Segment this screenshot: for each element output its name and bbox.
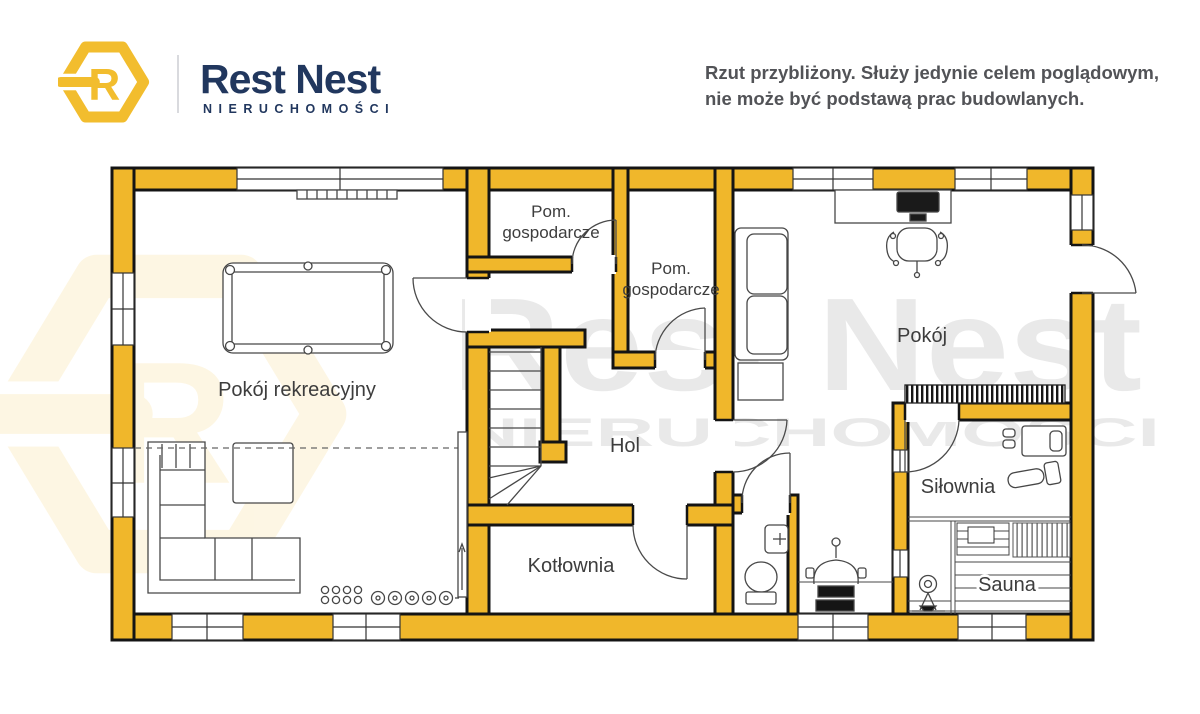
- window: [172, 614, 243, 640]
- wall-kotlownia-top: [467, 505, 733, 525]
- window: [798, 614, 868, 640]
- room-label-gosp2-line1: Pom.: [651, 259, 691, 278]
- window: [112, 273, 134, 345]
- wall-central: [715, 168, 733, 614]
- room-label-gosp1-line2: gospodarcze: [502, 223, 599, 242]
- wall-radiator-icon: [458, 432, 467, 597]
- room-label-sauna: Sauna: [978, 574, 1037, 596]
- coffee-table-icon: [233, 443, 293, 503]
- sauna-benches-icon: [908, 517, 1071, 614]
- wall-bottom: [112, 614, 1093, 640]
- room-label-hol: Hol: [610, 435, 640, 457]
- toilet-icon: [745, 562, 777, 604]
- wall-silownia-left: [893, 403, 908, 614]
- window: [112, 448, 134, 517]
- room-label-silownia: Siłownia: [921, 476, 996, 498]
- wall-right: [1071, 168, 1093, 640]
- room-label-pokoj: Pokój: [897, 325, 947, 347]
- wall-rec-divider: [467, 168, 489, 614]
- wall-stairs-right: [543, 347, 560, 442]
- room-label-kotlownia: Kotłownia: [528, 555, 616, 577]
- room-label-rekreacyjny: Pokój rekreacyjny: [218, 379, 376, 401]
- window: [958, 614, 1026, 640]
- sink-icon: [765, 525, 788, 553]
- sofa-icon: [735, 228, 788, 360]
- shower-stand-icon: [912, 576, 945, 612]
- window: [955, 168, 1027, 190]
- room-label-gosp2-line2: gospodarcze: [622, 280, 719, 299]
- window: [893, 550, 908, 577]
- weights-icons: [321, 586, 459, 604]
- side-table-icon: [738, 363, 783, 400]
- pool-table-icon: [223, 262, 393, 354]
- window: [1071, 195, 1093, 230]
- window: [237, 168, 443, 190]
- window: [793, 168, 873, 190]
- desk-icon: [835, 190, 951, 223]
- room-label-gosp1-line1: Pom.: [531, 202, 571, 221]
- window: [333, 614, 400, 640]
- wall-left: [112, 168, 134, 640]
- bookshelf-icon: [905, 385, 1065, 403]
- floorplan-drawing: R Rest Nest NIERUCHOMOŚCI: [0, 0, 1200, 714]
- window: [893, 450, 908, 472]
- floorplan-page: R Rest Nest NIERUCHOMOŚCI Rzut przybliżo…: [0, 0, 1200, 714]
- wall-stairs-cap: [540, 442, 566, 462]
- radiator-icon: [297, 190, 397, 199]
- door-arc: [633, 525, 687, 579]
- gym-equipment-icon: [1003, 426, 1066, 492]
- exercise-bike-icon: [798, 538, 893, 611]
